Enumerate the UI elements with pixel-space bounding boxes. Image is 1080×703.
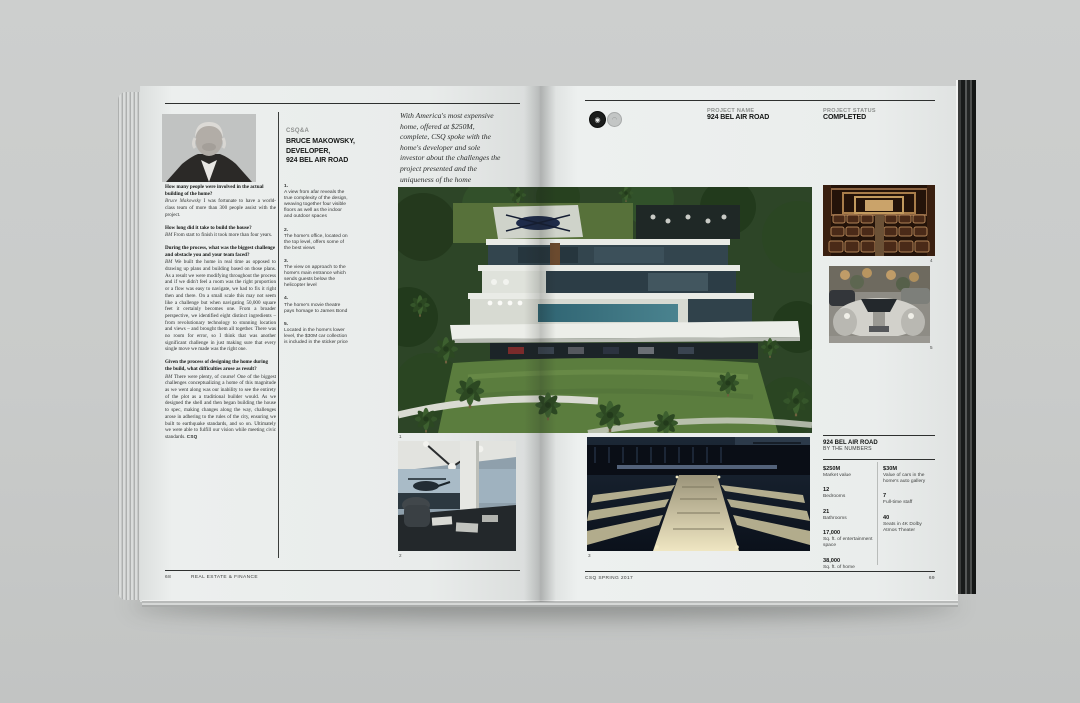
qa-answer: BM From start to finish it took more tha… [165, 232, 276, 239]
photo-caption: 2.The home's office, located on the top … [284, 228, 348, 252]
stat-value: 38,000 [823, 558, 873, 565]
qa-question: During the process, what was the biggest… [165, 245, 276, 258]
photo-number-theatre: 4 [930, 258, 933, 263]
left-folio-number: 68 [165, 575, 171, 580]
qa-answer-text: From start to finish it took more than f… [174, 232, 272, 238]
masthead: CSQ&A BRUCE MAKOWSKY, DEVELOPER, 924 BEL… [286, 128, 386, 166]
qa-answer: BM We built the home in real time as opp… [165, 259, 276, 353]
stat: $30MValue of cars in the home's auto gal… [883, 466, 935, 485]
stat-value: $30M [883, 466, 935, 473]
qa-speaker: BM [165, 232, 172, 238]
qa-question: How long did it take to build the house? [165, 225, 276, 232]
project-name-block: PROJECT NAME 924 BEL AIR ROAD [707, 108, 769, 121]
photo-number-entrance: 3 [588, 553, 591, 558]
photo-car-collection [829, 266, 930, 343]
caption-text: The home's office, located on the top le… [284, 234, 348, 251]
right-page-stack-edge [956, 80, 976, 594]
photo-office [398, 441, 516, 551]
project-status-value: COMPLETED [823, 114, 876, 121]
left-footer-rule [165, 570, 520, 571]
photo-number-cars: 5 [930, 345, 933, 350]
right-footer-rule [585, 571, 935, 572]
masthead-role: DEVELOPER, [286, 147, 386, 157]
by-the-numbers-heading: 924 BEL AIR ROAD BY THE NUMBERS [823, 440, 935, 452]
qa-answer-text: There were plenty, of course! One of the… [165, 374, 276, 440]
left-column-divider-rule [278, 112, 279, 558]
numbers-column-2: $30MValue of cars in the home's auto gal… [883, 466, 935, 542]
qa-speaker: Bruce Makowsky [165, 198, 201, 204]
photo-number-office: 2 [399, 553, 402, 558]
photo-caption: 1.A view from afar reveals the true comp… [284, 184, 348, 221]
qa-speaker: BM [165, 259, 172, 265]
stat: 12Bedrooms [823, 487, 873, 500]
stat-label: Bathrooms [823, 516, 873, 522]
intro-dek: With America's most expensive home, offe… [400, 111, 504, 185]
stat: 17,000Sq. ft. of entertainment space [823, 530, 873, 549]
masthead-name: BRUCE MAKOWSKY, [286, 137, 386, 147]
caption-text: Located in the home's lower level, the $… [284, 328, 348, 345]
photo-main-aerial-mansion [398, 187, 812, 433]
qa-answer: Bruce Makowsky I was fortunate to have a… [165, 198, 276, 218]
stat: 21Bathrooms [823, 509, 873, 522]
target-pin-badge-icon: ◉ [589, 111, 606, 128]
stat-value: $250M [823, 466, 873, 473]
stat: $250MMarket value [823, 466, 873, 479]
right-folio-number: 69 [905, 576, 935, 581]
stat-label: Sq. ft. of entertainment space [823, 537, 873, 549]
stat-label: Market value [823, 473, 873, 479]
qa-question: Given the process of designing the home … [165, 359, 276, 372]
bottom-page-stack-edge [142, 600, 958, 607]
left-footer-section: REAL ESTATE & FINANCE [191, 575, 258, 580]
qa-answer: BM There were plenty, of course! One of … [165, 374, 276, 441]
caption-text: The view on approach to the home's main … [284, 265, 346, 288]
numbers-top-rule [823, 435, 935, 436]
stat-label: Sq. ft. of home [823, 565, 873, 571]
photo-entrance-night [587, 437, 810, 551]
photo-number-main: 1 [399, 434, 402, 439]
masthead-project: 924 BEL AIR ROAD [286, 156, 386, 166]
qa-answer-text: We built the home in real time as oppose… [165, 259, 276, 352]
stat: 38,000Sq. ft. of home [823, 558, 873, 571]
stat: 40Seats in 4K Dolby Atmos Theater [883, 515, 935, 534]
portrait-photo-bruce-makowsky [162, 114, 256, 182]
caption-text: The home's movie theatre pays homage to … [284, 303, 347, 314]
masthead-kicker: CSQ&A [286, 128, 386, 134]
photo-caption: 3.The view on approach to the home's mai… [284, 259, 348, 289]
article-end-mark: CSQ [187, 434, 198, 439]
right-page-top-rule [585, 100, 935, 101]
qa-column: How many people were involved in the act… [165, 184, 276, 447]
caption-text: A view from afar reveals the true comple… [284, 190, 348, 219]
stat-label: Bedrooms [823, 494, 873, 500]
photo-caption: 5.Located in the home's lower level, the… [284, 322, 348, 346]
qa-speaker: BM [165, 374, 172, 380]
qa-question: How many people were involved in the act… [165, 184, 276, 197]
photo-caption: 4.The home's movie theatre pays homage t… [284, 296, 348, 314]
stat-label: Full-time staff [883, 500, 935, 506]
stat: 7Full-time staff [883, 493, 935, 506]
project-name-value: 924 BEL AIR ROAD [707, 114, 769, 121]
photo-movie-theatre [823, 185, 935, 256]
numbers-column-rule [877, 462, 878, 565]
photo-captions-column: 1.A view from afar reveals the true comp… [284, 184, 348, 353]
stat-value: 40 [883, 515, 935, 522]
camera-badge-icon: ◠ [607, 112, 622, 127]
numbers-subtitle: BY THE NUMBERS [823, 446, 935, 452]
stat-value: 21 [823, 509, 873, 516]
project-status-block: PROJECT STATUS COMPLETED [823, 108, 876, 121]
stat-label: Seats in 4K Dolby Atmos Theater [883, 522, 935, 534]
left-page-top-rule [165, 103, 520, 104]
numbers-column-1: $250MMarket value 12Bedrooms 21Bathrooms… [823, 466, 873, 579]
right-footer-issue: CSQ SPRING 2017 [585, 576, 633, 581]
numbers-divider-rule [823, 459, 935, 460]
stat-label: Value of cars in the home's auto gallery [883, 473, 935, 485]
